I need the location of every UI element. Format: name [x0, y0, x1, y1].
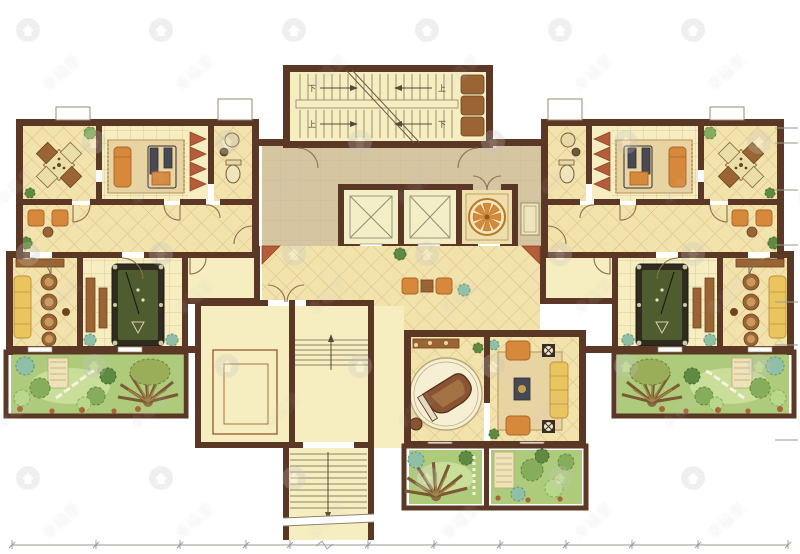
floor-plan-canvas: 下 上 上 下 — [0, 0, 800, 550]
watermark-layer — [0, 0, 800, 550]
